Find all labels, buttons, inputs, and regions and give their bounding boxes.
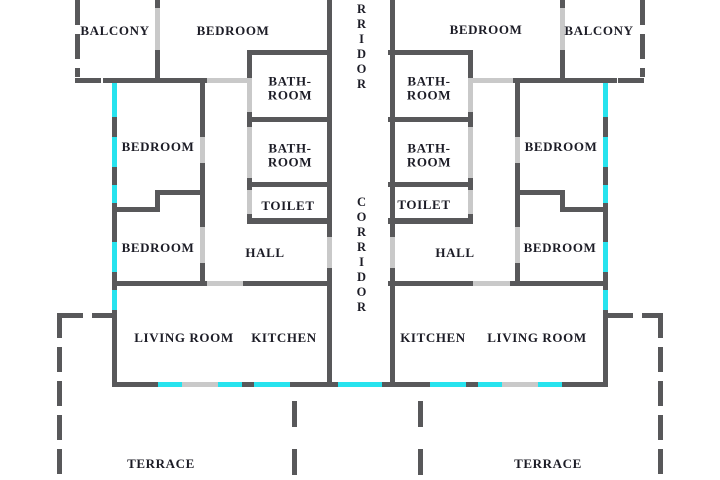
room-label-hall-left: HALL — [245, 246, 284, 260]
window — [603, 290, 608, 310]
door-opening — [207, 78, 247, 83]
wall — [112, 281, 207, 286]
door-opening — [207, 281, 243, 286]
room-label-bedroom-top-left: BEDROOM — [197, 24, 270, 38]
window — [430, 382, 466, 387]
door-opening — [200, 137, 205, 163]
wall — [388, 281, 473, 286]
dashed-wall — [618, 78, 644, 83]
window — [112, 137, 117, 167]
wall — [560, 0, 565, 8]
door-opening — [247, 127, 252, 178]
wall — [242, 382, 254, 387]
wall — [515, 163, 520, 227]
room-label-hall-right: HALL — [435, 246, 474, 260]
wall — [249, 117, 332, 122]
window — [112, 290, 117, 310]
door-opening — [182, 382, 218, 387]
wall — [290, 382, 338, 387]
door-opening — [390, 237, 395, 268]
wall — [200, 83, 205, 137]
wall — [562, 382, 608, 387]
wall — [112, 207, 160, 212]
window — [603, 242, 608, 272]
window — [158, 382, 182, 387]
room-label-living-room-left: LIVING ROOM — [134, 331, 233, 345]
wall — [103, 78, 207, 83]
wall — [466, 382, 478, 387]
wall — [112, 167, 117, 185]
wall — [603, 117, 608, 137]
room-label-bedroom-low-right: BEDROOM — [524, 241, 597, 255]
window — [603, 137, 608, 167]
dashed-wall — [658, 313, 663, 480]
room-label-balcony-right: BALCONY — [564, 24, 633, 38]
wall — [510, 281, 608, 286]
door-opening — [200, 227, 205, 263]
window — [112, 185, 117, 203]
wall — [247, 50, 332, 55]
door-opening — [468, 190, 473, 214]
wall — [515, 190, 565, 195]
door-opening — [515, 137, 520, 163]
door-opening — [155, 8, 160, 50]
room-label-bathroom-lower-right: BATH- ROOM — [407, 141, 451, 168]
wall — [603, 167, 608, 185]
wall — [388, 218, 471, 224]
door-opening — [502, 382, 538, 387]
room-label-bathroom-upper-left: BATH- ROOM — [268, 74, 312, 101]
window — [112, 242, 117, 272]
room-label-toilet-left: TOILET — [261, 199, 314, 213]
wall — [513, 78, 617, 83]
wall — [603, 310, 608, 387]
window — [603, 185, 608, 203]
wall — [243, 281, 332, 286]
door-opening — [515, 227, 520, 263]
wall — [560, 207, 608, 212]
window — [218, 382, 242, 387]
wall — [112, 117, 117, 137]
wall — [388, 50, 473, 55]
room-label-bedroom-mid-right: BEDROOM — [525, 140, 598, 154]
room-label-kitchen-left: KITCHEN — [251, 331, 317, 345]
wall — [388, 117, 471, 122]
corridor-label-top: CORRIDOR — [354, 0, 369, 92]
floor-plan: BALCONY BEDROOM BEDROOM BALCONY BATH- RO… — [0, 0, 720, 480]
room-label-bedroom-low-left: BEDROOM — [122, 241, 195, 255]
dashed-wall — [418, 387, 423, 480]
wall — [155, 190, 205, 195]
wall — [515, 83, 520, 137]
door-opening — [247, 190, 252, 214]
dashed-wall — [75, 0, 80, 77]
dashed-wall — [57, 313, 62, 480]
room-label-toilet-right: TOILET — [397, 198, 450, 212]
window — [112, 83, 117, 117]
window — [254, 382, 290, 387]
door-opening — [327, 237, 332, 268]
door-opening — [473, 281, 510, 286]
wall — [112, 382, 158, 387]
door-opening — [473, 78, 513, 83]
room-label-bedroom-mid-left: BEDROOM — [122, 140, 195, 154]
room-label-terrace-left: TERRACE — [127, 457, 195, 471]
dashed-wall — [607, 313, 663, 318]
room-label-kitchen-right: KITCHEN — [400, 331, 466, 345]
room-label-terrace-right: TERRACE — [514, 457, 582, 471]
window — [538, 382, 562, 387]
window — [338, 382, 382, 387]
wall — [200, 163, 205, 227]
door-opening — [468, 127, 473, 178]
dashed-wall — [57, 313, 113, 318]
wall — [112, 310, 117, 387]
dashed-wall — [292, 387, 297, 480]
wall — [388, 182, 471, 187]
wall — [468, 50, 473, 78]
wall — [247, 50, 252, 78]
dashed-wall — [75, 78, 101, 83]
room-label-bedroom-top-right: BEDROOM — [450, 23, 523, 37]
door-opening — [468, 78, 473, 112]
room-label-living-room-right: LIVING ROOM — [487, 331, 586, 345]
door-opening — [247, 78, 252, 112]
room-label-bathroom-lower-left: BATH- ROOM — [268, 141, 312, 168]
corridor-label-middle: CORRIDOR — [354, 195, 369, 315]
window — [603, 83, 608, 117]
wall — [155, 0, 160, 8]
room-label-bathroom-upper-right: BATH- ROOM — [407, 74, 451, 101]
wall — [249, 182, 332, 187]
room-label-balcony-left: BALCONY — [80, 24, 149, 38]
dashed-wall — [640, 0, 645, 77]
wall — [249, 218, 332, 224]
window — [478, 382, 502, 387]
